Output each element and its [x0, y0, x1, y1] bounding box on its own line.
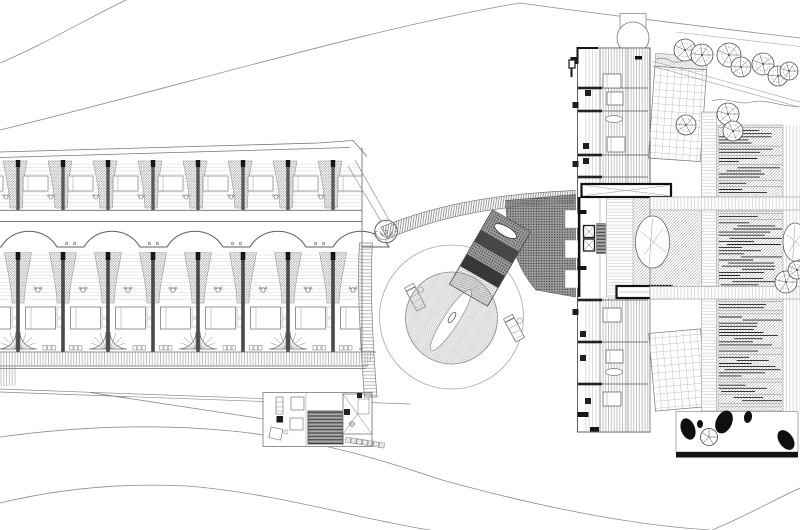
bed	[338, 176, 363, 191]
balcony	[565, 270, 578, 288]
fixture-dark-square	[580, 355, 586, 361]
bed	[0, 307, 11, 329]
deck-tile	[52, 346, 56, 351]
bed	[113, 176, 138, 191]
bold-party-wall	[578, 87, 602, 90]
column-post	[16, 252, 20, 352]
tree-icon	[723, 121, 743, 141]
column-post	[151, 252, 155, 352]
column-post-cap	[196, 160, 200, 167]
bottom-bold-wall	[590, 427, 599, 432]
terrace-grid	[649, 329, 708, 411]
left-guest-wing	[0, 141, 410, 422]
deck-tile	[228, 346, 232, 351]
tree-trunk	[685, 124, 687, 126]
roof-hatch-left-lower	[584, 298, 600, 431]
bed	[68, 176, 93, 191]
column-post-cap	[61, 160, 65, 167]
stepping-tile	[379, 442, 385, 448]
roof-hatch-left	[584, 49, 600, 185]
column-post	[106, 160, 109, 210]
deck-tile	[138, 346, 142, 351]
tree-trunk	[762, 63, 764, 65]
equipment-box	[290, 418, 303, 430]
paved-walk-vertical-rungs	[702, 112, 717, 452]
column-post	[196, 160, 199, 210]
bed	[71, 307, 101, 329]
bed	[116, 307, 146, 329]
rock-garden-edge-wall	[676, 452, 798, 458]
column-post-cap	[151, 252, 156, 260]
column-post-cap	[106, 252, 111, 260]
deck-tile	[322, 346, 326, 351]
column-post	[16, 160, 19, 210]
tree-icon	[691, 44, 713, 66]
roof-dark-tick	[635, 56, 642, 60]
contour-line	[712, 488, 800, 530]
fixture-dark-square	[585, 398, 591, 404]
deck-tile	[133, 346, 137, 351]
column-post	[331, 160, 334, 210]
fixture-dark-square	[583, 143, 589, 149]
bottom-bold-wall	[578, 412, 589, 417]
column-post	[106, 252, 110, 352]
wall-jog	[578, 266, 587, 270]
upper-room-row	[0, 160, 378, 210]
boulder	[697, 420, 703, 428]
column-post	[241, 160, 244, 210]
column-post	[196, 252, 200, 352]
column-post	[286, 160, 289, 210]
bold-party-wall	[578, 299, 602, 302]
column-post	[61, 160, 64, 210]
tree-trunk	[701, 54, 703, 56]
core-stair	[597, 224, 606, 254]
rock-garden	[676, 408, 798, 458]
stepping-tile	[351, 438, 357, 444]
deck-band	[0, 352, 376, 366]
tree-trunk	[732, 130, 734, 132]
service-stair	[308, 411, 343, 444]
deck-tile	[48, 346, 52, 351]
tree-icon	[731, 57, 751, 77]
bed	[206, 307, 236, 329]
nightstand	[372, 307, 377, 317]
column-post-cap	[61, 252, 66, 260]
fixture-dark-square	[573, 309, 579, 315]
bold-party-wall	[578, 383, 602, 386]
bed	[607, 92, 623, 105]
tree-trunk	[785, 281, 787, 283]
deck-tile	[254, 346, 258, 351]
equipment-rack	[276, 397, 283, 414]
column-post	[61, 252, 65, 352]
deck-tile	[250, 346, 254, 351]
column-post	[241, 252, 245, 352]
shower-symbol	[363, 195, 365, 197]
bed	[158, 176, 183, 191]
column-post-cap	[286, 252, 291, 260]
terrace-grid	[648, 66, 706, 161]
lower-room-row	[0, 252, 378, 352]
stepping-tile	[362, 440, 368, 446]
column-post-cap	[16, 252, 21, 260]
deck-tile	[74, 346, 78, 351]
deck-tile	[160, 346, 164, 351]
deck-tile	[79, 346, 83, 351]
column-post-cap	[331, 160, 335, 167]
bed	[203, 176, 228, 191]
deck-tile	[232, 346, 236, 351]
central-ramp-corridor	[607, 197, 634, 297]
bed	[606, 350, 623, 363]
deck-tile	[349, 346, 353, 351]
contour-line	[0, 485, 430, 530]
service-building	[263, 393, 385, 449]
tree-trunk	[728, 54, 730, 56]
planter-dot	[65, 242, 67, 244]
bed	[607, 137, 625, 152]
braced-room-closet	[358, 399, 369, 414]
tree-trunk	[796, 269, 798, 271]
deck-hatch-extra	[0, 366, 16, 386]
roof-edge	[0, 141, 367, 158]
bed	[23, 176, 48, 191]
bathtub	[606, 116, 623, 123]
fixture-dark-square	[585, 90, 591, 96]
fixture-dark-square	[573, 102, 579, 108]
deck-tile	[164, 346, 168, 351]
terrace-ramp-diagonal	[90, 393, 277, 422]
bed	[293, 176, 318, 191]
site-plan-canvas	[0, 0, 800, 530]
fixture-dark-square	[573, 161, 579, 167]
deck-tile	[70, 346, 74, 351]
balcony	[565, 240, 578, 258]
bold-party-wall	[578, 154, 602, 157]
column-post	[331, 252, 335, 352]
planter-dot	[156, 242, 158, 244]
dark-fixture	[357, 393, 362, 398]
tree-trunk	[777, 75, 779, 77]
roof-opening-stone	[636, 216, 670, 268]
stepping-tile	[373, 442, 379, 448]
column-post-cap	[241, 160, 245, 167]
balcony	[565, 210, 578, 228]
equipment-dark-unit	[277, 416, 284, 423]
boardwalk-path	[359, 243, 377, 397]
terrace-grid-upper	[648, 53, 707, 161]
bold-party-wall	[578, 176, 602, 179]
column-post-cap	[196, 252, 201, 260]
column-post	[286, 252, 290, 352]
planter-dot	[322, 242, 324, 244]
planter-dot	[148, 242, 150, 244]
stepping-tile	[368, 441, 374, 447]
bed	[251, 307, 281, 329]
deck-tile	[169, 346, 173, 351]
deck-tile	[43, 346, 47, 351]
equipment-box	[291, 397, 304, 410]
tree-trunk	[740, 66, 742, 68]
column-post-cap	[106, 160, 110, 167]
bathtub	[606, 369, 623, 376]
bed	[603, 392, 621, 406]
contour-line	[0, 0, 126, 63]
fixture-dark-square	[583, 158, 589, 164]
column-post-cap	[286, 160, 290, 167]
stepping-tile	[357, 439, 363, 445]
shower-symbol	[368, 195, 370, 197]
column-post-cap	[331, 252, 336, 260]
tree-trunk	[727, 113, 729, 115]
bold-party-wall	[578, 341, 602, 344]
equipment-box	[269, 427, 283, 440]
funnel-wall-hatch	[363, 161, 378, 208]
tree-icon	[780, 62, 798, 80]
entry-box	[569, 60, 575, 68]
wall-jog	[578, 210, 587, 214]
deck-tile	[259, 346, 263, 351]
bed	[161, 307, 191, 329]
column-post-cap	[16, 160, 20, 167]
dark-fixture	[344, 409, 350, 415]
fixture-dark-square	[580, 331, 586, 337]
stepping-tile	[345, 437, 351, 443]
garden-wave-planters	[65, 242, 324, 244]
column-post-cap	[151, 160, 155, 167]
deck-tile	[344, 346, 348, 351]
bed	[248, 176, 273, 191]
tree-trunk	[684, 49, 686, 51]
terrace-grid-lower	[649, 329, 708, 411]
column-post-cap	[241, 252, 246, 260]
bed	[603, 308, 621, 322]
tree-trunk	[788, 70, 790, 72]
paved-band-upper-joints	[650, 197, 800, 210]
tree-icon	[676, 115, 696, 135]
green-roof-hatch	[718, 299, 783, 411]
bed	[0, 176, 3, 191]
deck-tile	[223, 346, 227, 351]
bed	[296, 307, 326, 329]
site-plan-page	[0, 0, 800, 530]
planter-dot	[239, 242, 241, 244]
column-post	[151, 160, 154, 210]
deck-tile	[142, 346, 146, 351]
corridor-edges	[0, 210, 362, 221]
bold-party-wall	[578, 110, 602, 113]
deck-tile	[318, 346, 322, 351]
deck-tile	[340, 346, 344, 351]
boardwalk-band	[359, 243, 377, 397]
bed	[26, 307, 56, 329]
planter-dot	[231, 242, 233, 244]
deck-tile	[313, 346, 317, 351]
bed	[603, 74, 621, 88]
planter-dot	[73, 242, 75, 244]
garden-wave-path	[0, 231, 389, 247]
planter-dot	[314, 242, 316, 244]
